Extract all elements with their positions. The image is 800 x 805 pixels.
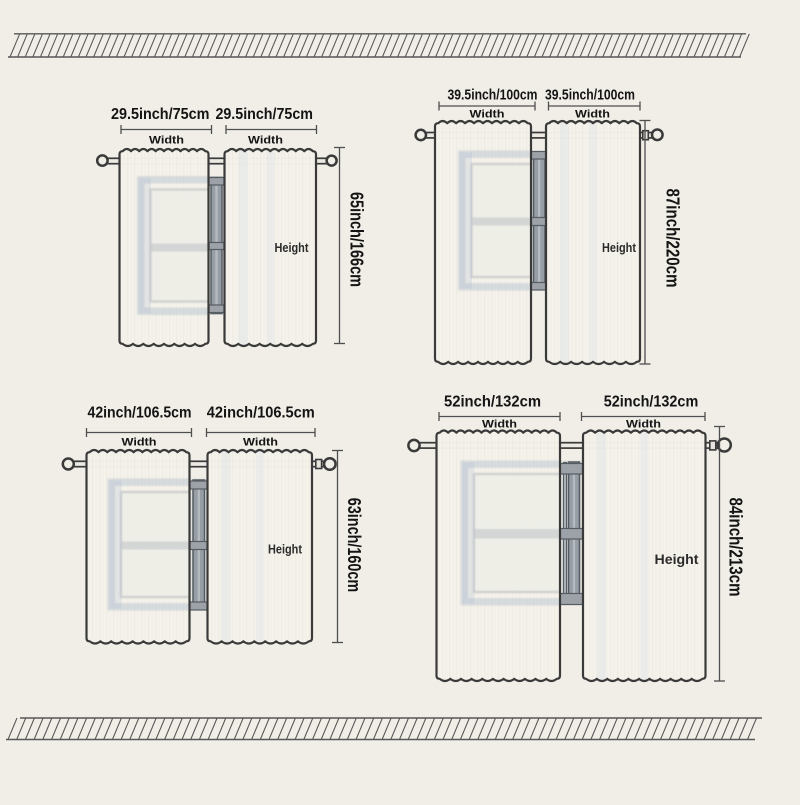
svg-text:Width: Width bbox=[122, 437, 157, 449]
svg-text:42inch/106.5cm: 42inch/106.5cm bbox=[88, 405, 192, 422]
svg-text:29.5inch/75cm: 29.5inch/75cm bbox=[111, 106, 210, 123]
svg-text:Width: Width bbox=[149, 135, 184, 147]
svg-text:39.5inch/100cm: 39.5inch/100cm bbox=[545, 87, 635, 104]
svg-text:Width: Width bbox=[575, 109, 610, 121]
svg-text:Height: Height bbox=[268, 543, 303, 557]
svg-text:87inch/220cm: 87inch/220cm bbox=[663, 189, 684, 288]
svg-text:Height: Height bbox=[655, 551, 699, 567]
svg-text:52inch/132cm: 52inch/132cm bbox=[444, 394, 541, 411]
svg-text:52inch/132cm: 52inch/132cm bbox=[604, 394, 699, 411]
svg-text:Height: Height bbox=[602, 241, 637, 255]
svg-text:Width: Width bbox=[243, 437, 278, 449]
svg-text:65inch/166cm: 65inch/166cm bbox=[347, 192, 368, 287]
svg-text:29.5inch/75cm: 29.5inch/75cm bbox=[215, 106, 313, 123]
svg-text:Width: Width bbox=[626, 419, 661, 431]
svg-text:Width: Width bbox=[248, 135, 283, 147]
svg-text:Width: Width bbox=[482, 419, 517, 431]
svg-text:84inch/213cm: 84inch/213cm bbox=[726, 498, 747, 597]
svg-text:39.5inch/100cm: 39.5inch/100cm bbox=[448, 87, 538, 104]
svg-text:63inch/160cm: 63inch/160cm bbox=[344, 498, 365, 593]
svg-text:Width: Width bbox=[470, 109, 505, 121]
svg-text:42inch/106.5cm: 42inch/106.5cm bbox=[207, 405, 315, 422]
svg-text:Height: Height bbox=[275, 241, 310, 255]
